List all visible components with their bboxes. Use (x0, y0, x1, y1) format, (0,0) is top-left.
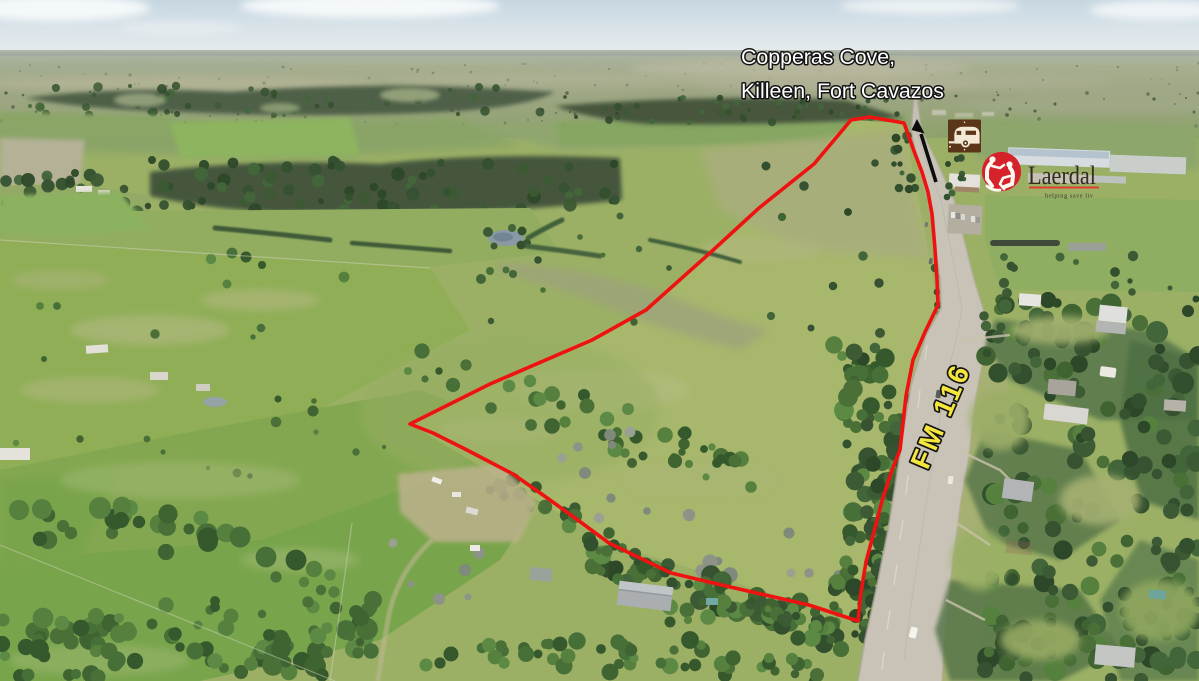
svg-text:helping save liv: helping save liv (1045, 193, 1094, 200)
svg-text:Copperas Cove,: Copperas Cove, (741, 45, 895, 69)
svg-text:Killeen, Fort Cavazos: Killeen, Fort Cavazos (741, 79, 944, 103)
svg-text:Laerdal: Laerdal (1028, 161, 1096, 190)
